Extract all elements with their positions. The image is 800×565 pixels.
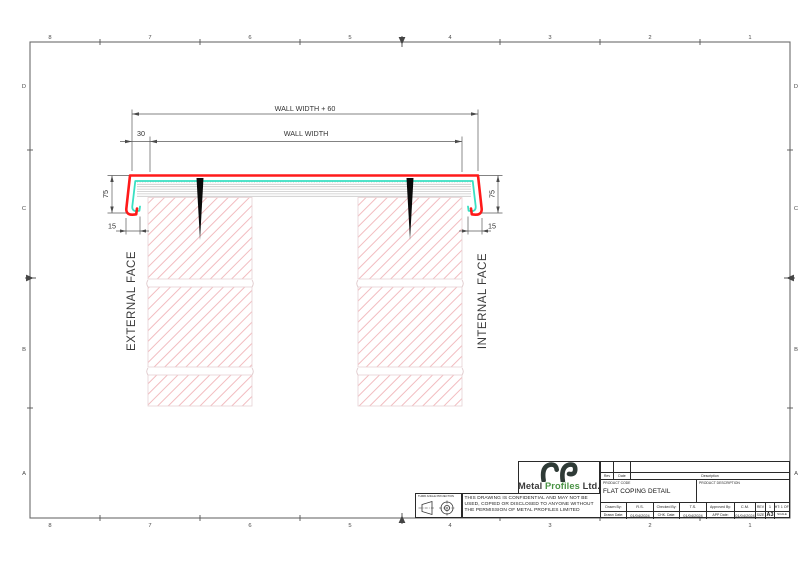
company-name-metal: Metal	[518, 481, 542, 491]
ruler-letter: C	[22, 206, 26, 212]
dim-wall-width: WALL WIDTH	[284, 129, 329, 138]
company-name-ltd: Ltd.	[583, 481, 600, 491]
ruler-letter: D	[794, 84, 798, 90]
ruler-letter: A	[22, 471, 26, 477]
dim-overhang: 30	[137, 129, 145, 138]
internal-face-label: INTERNAL FACE	[477, 253, 489, 349]
bedding-layer-lines	[137, 182, 471, 196]
third-angle-projection-box: THIRD ANGLE PROJECTION	[415, 493, 462, 518]
ruler-number: 4	[448, 35, 452, 41]
rev-label: REV	[755, 503, 765, 511]
external-wall-segment	[148, 287, 252, 367]
app-date-value: 01/04/2024	[734, 512, 755, 520]
revision-entry-cell	[630, 462, 789, 472]
product-code-value: FLAT COPING DETAIL	[603, 488, 694, 495]
scale-label: SCALE	[774, 512, 789, 520]
dim-face-height-right: 75	[488, 190, 497, 198]
ruler-number: 1	[748, 523, 751, 529]
approved-by-label: Approved By:	[706, 503, 734, 511]
internal-wall-segment	[358, 287, 462, 367]
ruler-number: 7	[148, 35, 151, 41]
ruler-letter: B	[794, 347, 798, 353]
size-value: A3	[765, 512, 774, 520]
drawing-sheet: 8 7 6 5 4 3 2 1 8 7 6 5 4 3 2 1 D C B A …	[0, 0, 800, 565]
dim-kick-right: 15	[488, 222, 496, 231]
date-column-header: Date	[613, 473, 630, 480]
product-description-cell: PRODUCT DESCRIPTION	[696, 480, 789, 502]
rev-value: 1	[765, 503, 774, 511]
ruler-number: 2	[648, 523, 651, 529]
frame-labels: 8 7 6 5 4 3 2 1 8 7 6 5 4 3 2 1 D C B A …	[22, 35, 798, 529]
company-logo-box: Metal Profiles Ltd.	[518, 461, 600, 494]
ruler-number: 6	[248, 523, 251, 529]
ruler-number: 4	[448, 523, 452, 529]
date-row: Drawn Date: 01/04/2024 CHK. Date: 01/04/…	[601, 511, 789, 520]
revision-entry-cell	[601, 462, 613, 472]
ruler-number: 3	[548, 523, 551, 529]
dim-kick-left: 15	[108, 222, 116, 231]
chk-date-value: 01/04/2024	[679, 512, 706, 520]
company-name-profiles: Profiles	[545, 481, 580, 491]
dim-face-height-left: 75	[101, 190, 110, 198]
ruler-number: 1	[748, 35, 751, 41]
ruler-letter: A	[794, 471, 798, 477]
ruler-number: 8	[48, 523, 51, 529]
sheet-border	[30, 42, 790, 518]
drawn-by-value: R.S.	[626, 503, 653, 511]
dim-overall-width: WALL WIDTH + 60	[275, 104, 336, 113]
ruler-number: 6	[248, 35, 251, 41]
signature-row: Drawn By: R.S. Checked By: T.S. Approved…	[601, 502, 789, 511]
revision-entry-cell	[613, 462, 630, 472]
app-date-label: APP Date:	[706, 512, 734, 520]
revision-header-row: Rev Date Description	[601, 472, 789, 480]
drawn-date-label: Drawn Date:	[601, 512, 626, 520]
ruler-letter: C	[794, 206, 798, 212]
logo-glyph	[543, 465, 557, 481]
wall-leaves	[148, 198, 462, 407]
product-code-label: PRODUCT CODE	[603, 481, 694, 485]
product-row: PRODUCT CODE FLAT COPING DETAIL PRODUCT …	[601, 479, 789, 502]
ruler-letter: B	[22, 347, 26, 353]
ruler-number: 7	[148, 523, 151, 529]
revision-entry-row	[601, 462, 789, 472]
approved-by-value: C.M.	[734, 503, 755, 511]
checked-by-value: T.S.	[679, 503, 706, 511]
ruler-number: 5	[348, 35, 351, 41]
centring-marks	[25, 36, 795, 524]
ruler-number: 2	[648, 35, 651, 41]
sheet-number: SHT: 1 OF 1	[774, 503, 789, 511]
external-face-label: EXTERNAL FACE	[126, 251, 138, 351]
checked-by-label: Checked By:	[653, 503, 679, 511]
internal-wall-segment	[358, 375, 462, 406]
logo-glyph	[562, 465, 575, 482]
drawn-by-label: Drawn By:	[601, 503, 626, 511]
product-code-cell: PRODUCT CODE FLAT COPING DETAIL	[601, 480, 696, 502]
frame-ticks	[27, 39, 793, 521]
external-wall-segment	[148, 375, 252, 406]
rev-column-header: Rev	[601, 473, 613, 480]
size-label: SIZE	[755, 512, 765, 520]
product-description-label: PRODUCT DESCRIPTION	[699, 481, 787, 485]
ruler-number: 8	[48, 35, 51, 41]
ruler-number: 3	[548, 35, 551, 41]
company-name: Metal Profiles Ltd.	[518, 482, 600, 491]
drawn-date-value: 01/04/2024	[626, 512, 653, 520]
projection-symbol	[416, 498, 462, 518]
metal-profiles-logo-icon	[538, 462, 580, 482]
description-column-header: Description	[630, 473, 789, 480]
chk-date-label: CHK. Date:	[653, 512, 679, 520]
title-block: Rev Date Description PRODUCT CODE FLAT C…	[600, 461, 790, 518]
ruler-number: 5	[348, 523, 351, 529]
confidentiality-note: THIS DRAWING IS CONFIDENTIAL AND MAY NOT…	[462, 493, 601, 518]
ruler-letter: D	[22, 84, 26, 90]
